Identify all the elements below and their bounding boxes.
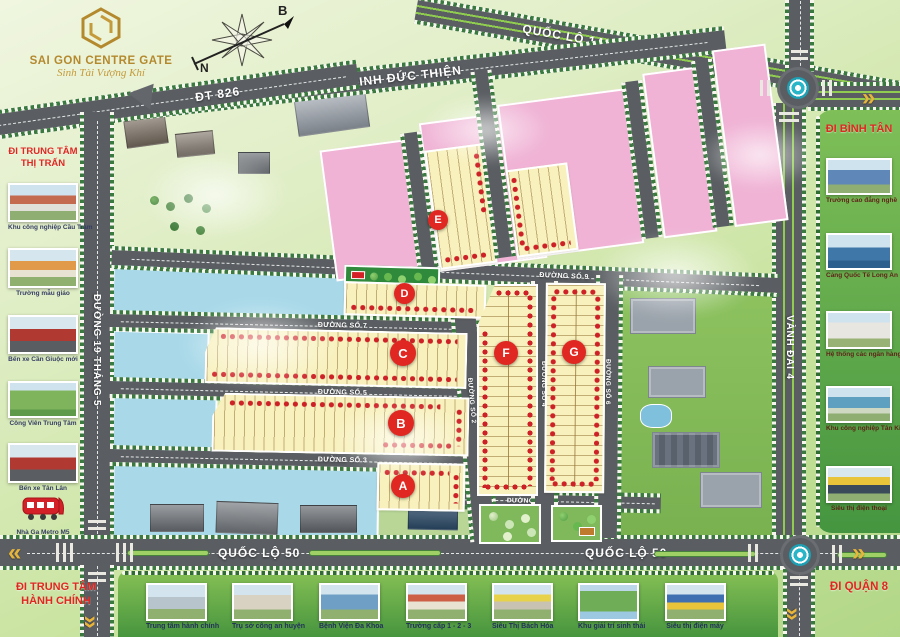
park-square <box>479 504 541 544</box>
block-letter: A <box>399 479 408 493</box>
sold-markers <box>452 474 461 504</box>
road-median <box>310 551 440 555</box>
sold-markers <box>228 399 440 411</box>
master-plan-poster: QUỐC LỘ 1A ĐINH ĐỨC THIỆN ĐT 826 ĐƯỜNG 1… <box>0 0 900 637</box>
amenity-caption: Trường cấp 1 - 2 - 3 <box>406 623 466 630</box>
amenity-photo <box>578 583 639 621</box>
block-badge-f: F <box>494 341 518 365</box>
road-label-dt826: ĐT 826 <box>194 84 241 104</box>
crosswalk <box>748 544 762 562</box>
sold-markers <box>592 295 602 481</box>
crosswalk <box>116 543 136 562</box>
block-badge-c: C <box>390 340 416 366</box>
amenity-caption: Khu giải trí sinh thái <box>578 623 638 630</box>
block-letter: B <box>396 416 405 431</box>
block-a-lots <box>377 462 466 512</box>
amenity-caption: Trụ sở công an huyện <box>232 623 292 630</box>
amenity-card: Công Viên Trung Tâm <box>8 381 78 427</box>
playground <box>579 527 595 536</box>
amenity-photo <box>406 583 467 621</box>
amenity-card: Khu công nghiệp Cầu Tràm <box>8 183 78 231</box>
park-square <box>551 505 602 542</box>
road-label-so7: ĐƯỜNG SỐ 7 <box>318 321 368 329</box>
sold-markers <box>383 468 449 477</box>
amenity-card: Khu giải trí sinh thái <box>578 583 638 630</box>
amenity-photo <box>232 583 293 621</box>
road-end-arrow <box>126 80 153 109</box>
amenity-photo <box>8 381 78 418</box>
road-duong-19-thang-5: ĐƯỜNG 19 THÁNG 5 <box>84 112 110 568</box>
amenity-caption: Công Viên Trung Tâm <box>8 420 78 427</box>
building <box>700 472 762 508</box>
amenity-caption: Trung tâm hành chính <box>146 623 206 630</box>
amenity-caption: Cảng Quốc Tế Long An <box>826 272 892 279</box>
house <box>238 152 270 174</box>
sold-markers <box>455 408 464 446</box>
building <box>630 298 696 334</box>
amenity-caption: Khu công nghiệp Tân Kim <box>826 425 892 432</box>
amenity-card: Hệ thống các ngân hàng <box>826 311 892 358</box>
crosswalk <box>88 520 106 532</box>
crosswalk <box>760 80 772 96</box>
amenity-card: Siêu thị điện thoại <box>826 466 892 512</box>
house <box>215 501 278 535</box>
amenity-card: Bến xe Tân Lân <box>8 443 78 492</box>
sold-markers <box>523 239 572 253</box>
building <box>652 432 720 468</box>
amenity-photo <box>826 466 892 503</box>
amenity-caption: Trường cao đẳng nghề <box>826 197 892 204</box>
amenity-card: Bệnh Viện Đa Khoa <box>319 583 379 630</box>
amenity-photo <box>8 443 78 483</box>
tree <box>150 196 159 205</box>
tree <box>489 512 498 521</box>
block-d-lots <box>344 281 487 319</box>
road-centerline <box>121 321 457 330</box>
amenity-card-metro: Nhà Ga Metro M5 <box>8 494 78 536</box>
compass-south-label: N <box>200 61 209 75</box>
amenity-photo <box>8 183 78 222</box>
amenity-caption: Nhà Ga Metro M5 <box>8 529 78 536</box>
road-label-vanhdai4: VÀNH ĐAI 4 <box>784 315 795 380</box>
tree <box>559 512 568 521</box>
road-label-ql50-left: QUỐC LỘ 50 <box>218 546 300 560</box>
amenity-card: Siêu Thị Bách Hóa <box>492 583 552 630</box>
sold-markers <box>382 441 454 450</box>
right-panel-heading-top: ĐI BÌNH TÂN <box>816 122 900 136</box>
left-panel-heading-top: ĐI TRUNG TÂM THỊ TRẤN <box>0 146 86 171</box>
amenity-photo <box>8 248 78 288</box>
block-letter: C <box>398 346 407 361</box>
road-label-19thang5: ĐƯỜNG 19 THÁNG 5 <box>91 294 102 406</box>
amenity-photo <box>826 233 892 270</box>
amenity-card: Cảng Quốc Tế Long An <box>826 233 892 279</box>
lot-spine <box>508 290 509 490</box>
amenity-photo <box>492 583 553 621</box>
block-badge-e: E <box>428 210 448 230</box>
house <box>300 505 357 533</box>
right-panel-heading-bottom: ĐI QUẬN 8 <box>818 580 900 595</box>
sold-markers <box>211 370 457 384</box>
sold-markers <box>443 250 490 264</box>
road-label-so3: ĐƯỜNG SỐ 3 <box>318 456 368 464</box>
block-letter: E <box>434 214 441 226</box>
crosswalk <box>832 545 846 563</box>
sold-markers <box>526 294 534 486</box>
amenity-caption: Siêu Thị Bách Hóa <box>492 623 552 630</box>
crosswalk <box>790 576 808 588</box>
metro-train-icon <box>21 494 65 522</box>
amenity-caption: Bệnh Viện Đa Khoa <box>319 623 379 630</box>
amenity-card: Khu công nghiệp Tân Kim <box>826 386 892 432</box>
amenity-caption: Siêu thị điện máy <box>665 623 725 630</box>
amenity-photo <box>826 386 892 423</box>
block-badge-a: A <box>391 474 415 498</box>
roundabout-island <box>789 544 811 566</box>
roundabout-north <box>780 70 816 106</box>
block-f-lots <box>477 284 538 496</box>
amenity-card: Bến xe Cần Giuộc mới <box>8 315 78 363</box>
sold-markers <box>553 288 597 296</box>
sold-markers <box>219 332 457 345</box>
amenity-card: Trường cấp 1 - 2 - 3 <box>406 583 466 630</box>
sold-markers <box>350 303 476 314</box>
amenity-photo <box>665 583 726 621</box>
amenity-caption: Bến xe Tân Lân <box>8 485 78 492</box>
amenity-photo <box>319 583 380 621</box>
amenity-card: Trung tâm hành chính <box>146 583 206 630</box>
amenity-card: Siêu thị điện máy <box>665 583 725 630</box>
lot-spine <box>574 289 577 487</box>
roundabout-south <box>783 538 817 572</box>
amenity-photo <box>826 158 892 195</box>
sold-markers <box>481 330 489 488</box>
block-badge-d: D <box>394 283 415 304</box>
roundabout-island <box>787 77 809 99</box>
chevron-east-arrow: » <box>862 86 871 110</box>
block-letter: F <box>502 346 509 360</box>
amenity-caption: Siêu thị điện thoại <box>826 505 892 512</box>
building <box>648 366 706 398</box>
block-b-lots <box>211 393 469 457</box>
tree <box>370 272 378 280</box>
sold-markers <box>551 480 595 488</box>
road-median <box>655 552 755 556</box>
amenity-caption: Trường mẫu giáo <box>8 290 78 297</box>
pond <box>640 404 672 428</box>
house <box>175 130 215 158</box>
block-letter: G <box>569 345 578 359</box>
brand-name: SAI GON CENTRE GATE <box>16 55 186 67</box>
block-g-lots <box>544 283 606 494</box>
amenity-caption: Hệ thống các ngân hàng <box>826 351 892 358</box>
block-badge-g: G <box>562 340 586 364</box>
amenity-card: Trụ sở công an huyện <box>232 583 292 630</box>
chevron-south-arrow: » <box>781 607 805 616</box>
compass-rose: B N <box>182 2 304 81</box>
amenity-photo <box>8 315 78 354</box>
billboard <box>351 271 365 279</box>
crosswalk <box>791 50 808 62</box>
crosswalk <box>779 112 799 124</box>
left-panel-heading-bottom: ĐI TRUNG TÂM HÀNH CHÍNH <box>0 580 112 609</box>
amenity-card: Trường mẫu giáo <box>8 248 78 297</box>
block-c-lots <box>204 327 467 389</box>
block-badge-b: B <box>388 410 414 436</box>
compass-north-label: B <box>278 3 287 18</box>
brand-tagline: Sinh Tài Vượng Khí <box>16 67 186 79</box>
chevron-west-arrow: « <box>8 541 17 565</box>
brand-logo: SAI GON CENTRE GATE Sinh Tài Vượng Khí <box>16 6 186 79</box>
sold-markers <box>484 483 530 491</box>
amenity-card: Trường cao đẳng nghề <box>826 158 892 204</box>
block-e-lots <box>506 162 579 257</box>
house <box>150 504 204 532</box>
amenity-photo <box>826 311 892 349</box>
crosswalk <box>56 543 76 562</box>
crosswalk <box>822 80 834 96</box>
chevron-east-arrow: » <box>852 541 861 565</box>
road-median <box>128 551 208 555</box>
brand-logo-icon <box>78 6 124 50</box>
chevron-south-arrow: » <box>79 615 103 624</box>
amenity-caption: Khu công nghiệp Cầu Tràm <box>8 224 78 231</box>
road-label-so9-right: ĐƯỜNG SỐ 9 <box>539 271 589 280</box>
amenity-photo <box>146 583 207 621</box>
amenity-caption: Bến xe Cần Giuộc mới <box>8 356 78 363</box>
block-letter: D <box>401 288 409 300</box>
sold-markers <box>548 295 558 481</box>
